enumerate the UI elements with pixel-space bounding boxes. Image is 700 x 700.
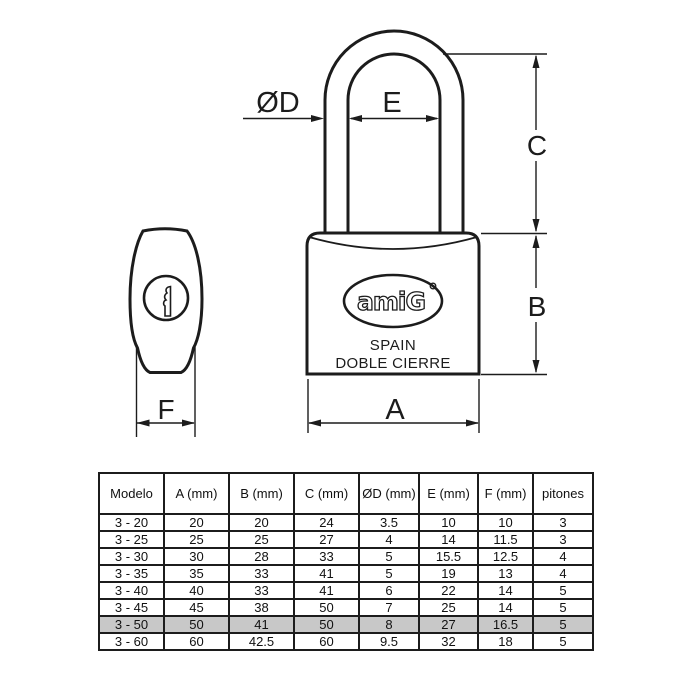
table-cell: 42.5: [229, 633, 294, 650]
table-cell: 8: [359, 616, 419, 633]
table-cell: 41: [229, 616, 294, 633]
table-cell: 50: [164, 616, 229, 633]
table-cell: 60: [164, 633, 229, 650]
brand-logo: amiG: [344, 275, 442, 327]
table-cell: 3 - 25: [99, 531, 164, 548]
table-cell: 4: [533, 548, 593, 565]
table-cell: 41: [294, 582, 359, 599]
table-cell: 22: [419, 582, 478, 599]
arrow-down-icon: [533, 219, 540, 232]
dim-label-e: E: [382, 87, 401, 119]
table-cell: 5: [359, 548, 419, 565]
table-row: 3 - 2525252741411.53: [99, 531, 593, 548]
table-cell: 4: [533, 565, 593, 582]
table-cell: 3: [533, 531, 593, 548]
table-cell: 6: [359, 582, 419, 599]
table-cell: 30: [164, 548, 229, 565]
table-cell: 3 - 45: [99, 599, 164, 616]
arrow-left-icon: [137, 420, 150, 427]
table-cell: 3 - 40: [99, 582, 164, 599]
table-row: 3 - 40403341622145: [99, 582, 593, 599]
table-cell: 3 - 30: [99, 548, 164, 565]
country-text: SPAIN: [370, 337, 416, 354]
column-header: pitones: [533, 473, 593, 514]
front-view: amiG SPAIN DOBLE CIERRE: [307, 31, 479, 374]
table-cell: 13: [478, 565, 533, 582]
table-cell: 7: [359, 599, 419, 616]
table-cell: 45: [164, 599, 229, 616]
arrow-left-icon: [308, 420, 321, 427]
table-cell: 5: [533, 633, 593, 650]
table-cell: 14: [419, 531, 478, 548]
arrow-right-icon: [311, 115, 324, 122]
dimension-shackle-diameter: ØD: [243, 87, 324, 122]
key-cylinder-circle: [144, 276, 188, 320]
table-cell: 50: [294, 599, 359, 616]
column-header: E (mm): [419, 473, 478, 514]
table-cell: 24: [294, 514, 359, 531]
table-cell: 10: [419, 514, 478, 531]
table-cell: 5: [533, 599, 593, 616]
table-cell: 3.5: [359, 514, 419, 531]
table-cell: 5: [533, 582, 593, 599]
table-cell: 38: [229, 599, 294, 616]
table-cell: 19: [419, 565, 478, 582]
table-cell: 20: [164, 514, 229, 531]
table-row: 3 - 5050415082716.55: [99, 616, 593, 633]
side-view: [130, 229, 202, 373]
table-cell: 35: [164, 565, 229, 582]
table-body: 3 - 202020243.5101033 - 2525252741411.53…: [99, 514, 593, 650]
table-cell: 9.5: [359, 633, 419, 650]
brand-text: amiG: [357, 287, 425, 316]
column-header: F (mm): [478, 473, 533, 514]
dimension-body-width: A: [308, 379, 479, 433]
table-cell: 50: [294, 616, 359, 633]
column-header: B (mm): [229, 473, 294, 514]
table-cell: 3 - 20: [99, 514, 164, 531]
dimension-shackle-height: C: [443, 54, 547, 234]
arrow-left-icon: [349, 115, 362, 122]
table-header: ModeloA (mm)B (mm)C (mm)ØD (mm)E (mm)F (…: [99, 473, 593, 514]
padlock-technical-drawing: amiG SPAIN DOBLE CIERRE ØD E: [0, 0, 700, 470]
table-cell: 60: [294, 633, 359, 650]
table-row: 3 - 202020243.510103: [99, 514, 593, 531]
table-header-row: ModeloA (mm)B (mm)C (mm)ØD (mm)E (mm)F (…: [99, 473, 593, 514]
table-row: 3 - 45453850725145: [99, 599, 593, 616]
table-cell: 15.5: [419, 548, 478, 565]
arrow-down-icon: [533, 360, 540, 373]
table-cell: 27: [294, 531, 359, 548]
table-cell: 3 - 50: [99, 616, 164, 633]
arrow-right-icon: [466, 420, 479, 427]
table-cell: 4: [359, 531, 419, 548]
arrow-up-icon: [533, 55, 540, 68]
column-header: C (mm): [294, 473, 359, 514]
padlock-spec-sheet: amiG SPAIN DOBLE CIERRE ØD E: [0, 0, 700, 700]
table-cell: 3 - 35: [99, 565, 164, 582]
table-cell: 25: [229, 531, 294, 548]
table-cell: 16.5: [478, 616, 533, 633]
table-cell: 5: [359, 565, 419, 582]
arrow-right-icon: [182, 420, 195, 427]
table-cell: 3: [533, 514, 593, 531]
table-cell: 41: [294, 565, 359, 582]
spec-table: ModeloA (mm)B (mm)C (mm)ØD (mm)E (mm)F (…: [98, 472, 594, 651]
table-cell: 32: [419, 633, 478, 650]
table-row: 3 - 606042.5609.532185: [99, 633, 593, 650]
dimension-shackle-inner-width: E: [349, 87, 439, 122]
dim-label-f: F: [157, 394, 174, 425]
arrow-up-icon: [533, 235, 540, 248]
dim-label-b: B: [528, 291, 547, 322]
dim-label-a: A: [385, 394, 405, 426]
column-header: Modelo: [99, 473, 164, 514]
dim-label-c: C: [527, 130, 547, 161]
table-cell: 33: [294, 548, 359, 565]
column-header: A (mm): [164, 473, 229, 514]
dim-label-d: ØD: [256, 87, 300, 119]
table-cell: 27: [419, 616, 478, 633]
dimension-body-height: B: [481, 235, 547, 375]
table-cell: 25: [164, 531, 229, 548]
arrow-right-icon: [426, 115, 439, 122]
table-cell: 28: [229, 548, 294, 565]
table-cell: 40: [164, 582, 229, 599]
table-cell: 10: [478, 514, 533, 531]
table-cell: 25: [419, 599, 478, 616]
shackle-outline: [325, 31, 463, 233]
table-cell: 33: [229, 582, 294, 599]
table-cell: 33: [229, 565, 294, 582]
table-cell: 14: [478, 599, 533, 616]
table-row: 3 - 30302833515.512.54: [99, 548, 593, 565]
table-cell: 14: [478, 582, 533, 599]
column-header: ØD (mm): [359, 473, 419, 514]
table-row: 3 - 35353341519134: [99, 565, 593, 582]
table-cell: 5: [533, 616, 593, 633]
table-cell: 3 - 60: [99, 633, 164, 650]
table-cell: 18: [478, 633, 533, 650]
table-cell: 11.5: [478, 531, 533, 548]
table-cell: 12.5: [478, 548, 533, 565]
subtitle-text: DOBLE CIERRE: [335, 355, 450, 372]
table-cell: 20: [229, 514, 294, 531]
